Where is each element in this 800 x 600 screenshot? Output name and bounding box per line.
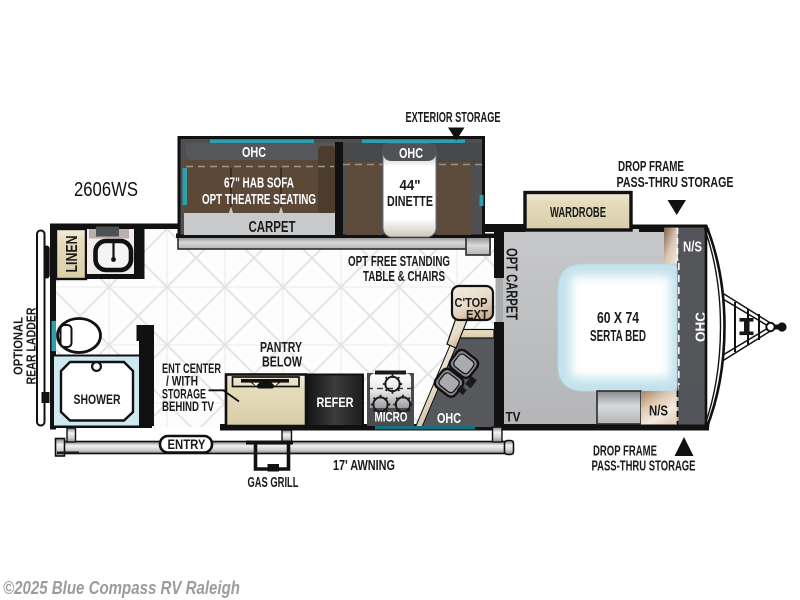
svg-text:N/S: N/S	[683, 240, 702, 256]
svg-text:EXTERIOR STORAGE: EXTERIOR STORAGE	[406, 109, 501, 126]
svg-text:REAR LADDER: REAR LADDER	[24, 307, 39, 384]
svg-text:44": 44"	[400, 177, 421, 194]
svg-text:OHC: OHC	[399, 145, 423, 162]
svg-text:TABLE & CHAIRS: TABLE & CHAIRS	[363, 268, 445, 285]
svg-text:BEHIND TV: BEHIND TV	[162, 398, 214, 414]
svg-text:17' AWNING: 17' AWNING	[333, 458, 395, 474]
svg-text:CARPET: CARPET	[249, 219, 296, 236]
svg-text:PASS-THRU STORAGE: PASS-THRU STORAGE	[592, 458, 696, 475]
svg-text:PASS-THRU STORAGE: PASS-THRU STORAGE	[617, 174, 734, 191]
svg-text:ENTRY: ENTRY	[168, 436, 207, 452]
svg-text:60 X 74: 60 X 74	[597, 310, 639, 327]
svg-text:2606WS: 2606WS	[74, 179, 138, 201]
svg-text:OHC: OHC	[242, 144, 266, 161]
svg-text:EXT: EXT	[466, 307, 488, 322]
svg-text:TV: TV	[506, 409, 522, 425]
svg-text:DROP FRAME: DROP FRAME	[618, 158, 684, 175]
svg-text:67" HAB SOFA: 67" HAB SOFA	[224, 176, 294, 192]
svg-text:©2025 Blue Compass RV Raleigh: ©2025 Blue Compass RV Raleigh	[3, 578, 240, 598]
svg-text:DINETTE: DINETTE	[387, 193, 433, 210]
svg-text:MICRO: MICRO	[375, 410, 408, 425]
svg-text:LINEN: LINEN	[64, 236, 81, 273]
svg-text:WARDROBE: WARDROBE	[550, 204, 606, 221]
svg-text:N/S: N/S	[649, 404, 668, 420]
svg-text:BELOW: BELOW	[262, 354, 303, 371]
svg-text:SERTA BED: SERTA BED	[590, 328, 646, 345]
svg-text:REFER: REFER	[317, 394, 354, 410]
svg-text:OPT CARPET: OPT CARPET	[503, 248, 520, 320]
svg-text:GAS GRILL: GAS GRILL	[248, 475, 299, 491]
svg-text:OPT THEATRE SEATING: OPT THEATRE SEATING	[202, 192, 316, 208]
svg-text:OHC: OHC	[437, 411, 461, 427]
svg-text:SHOWER: SHOWER	[74, 391, 121, 407]
